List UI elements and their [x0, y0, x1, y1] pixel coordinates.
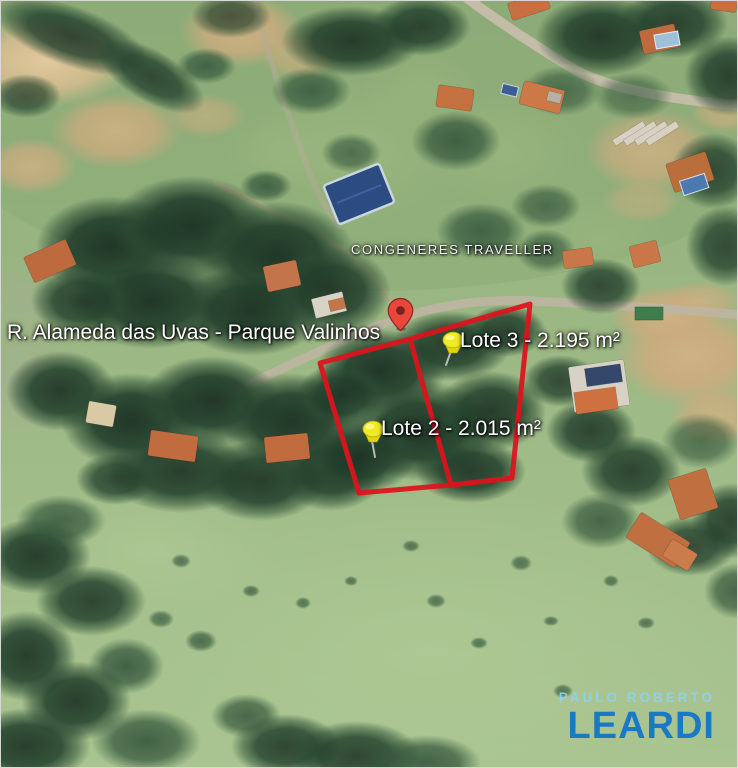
satellite-map-image: CONGENERES TRAVELLER R. Alameda das Uvas… [0, 0, 738, 768]
place-label: CONGENERES TRAVELLER [351, 242, 554, 257]
realtor-watermark: PAULO ROBERTO LEARDI [559, 690, 715, 745]
house-solar [568, 359, 630, 414]
street-label: R. Alameda das Uvas - Parque Valinhos [7, 321, 380, 345]
realtor-brand-logo: LEARDI [568, 707, 715, 745]
house-roof [562, 247, 594, 269]
lot2-area-label: Lote 2 - 2.015 m² [381, 417, 541, 441]
green-structure [635, 307, 663, 320]
house-roof [436, 85, 475, 112]
house-roof [85, 401, 116, 428]
lot3-area-label: Lote 3 - 2.195 m² [460, 329, 620, 353]
realtor-agent-name: PAULO ROBERTO [559, 690, 715, 705]
map-canvas [1, 1, 738, 768]
house-roof [264, 433, 310, 463]
